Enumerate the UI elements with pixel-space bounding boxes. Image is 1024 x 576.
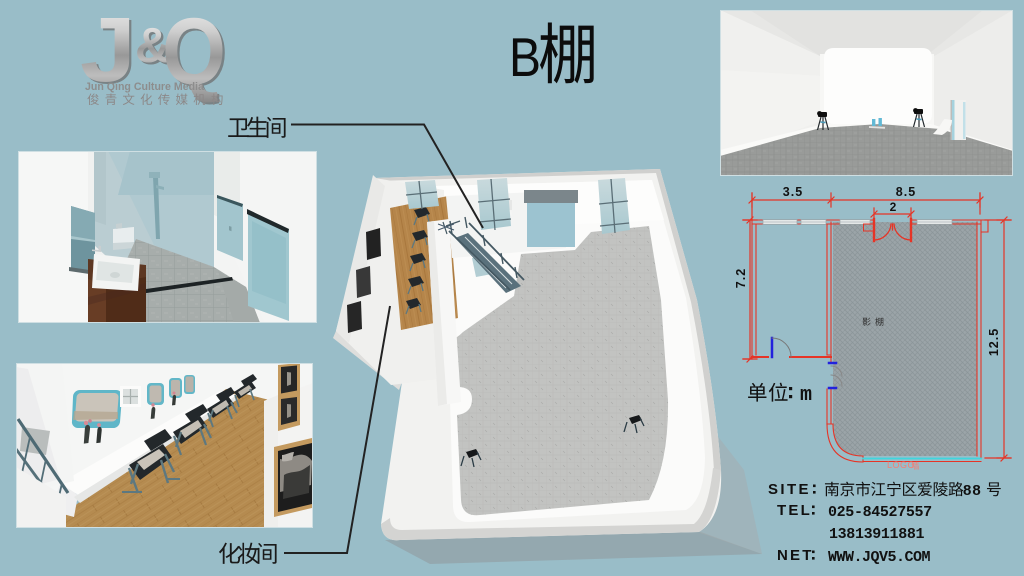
svg-text:3.5: 3.5 <box>783 185 803 199</box>
svg-text:88: 88 <box>963 482 982 499</box>
svg-text:7.2: 7.2 <box>734 268 748 288</box>
svg-text:LOGO: LOGO <box>887 460 915 470</box>
svg-text:12.5: 12.5 <box>987 328 1001 356</box>
svg-text:SITE: SITE <box>768 481 811 498</box>
svg-text:WWW.JQV5.COM: WWW.JQV5.COM <box>828 549 931 566</box>
svg-text:8.5: 8.5 <box>896 185 916 199</box>
svg-text:2: 2 <box>890 200 897 214</box>
svg-text:B: B <box>509 26 541 88</box>
svg-text:NET: NET <box>777 547 814 564</box>
svg-text:m: m <box>800 384 812 407</box>
svg-text:Jun Qing Culture Media: Jun Qing Culture Media <box>85 81 204 93</box>
svg-text:025-84527557: 025-84527557 <box>828 504 932 521</box>
svg-text:13813911881: 13813911881 <box>829 526 925 543</box>
svg-text:TEL: TEL <box>777 502 812 519</box>
